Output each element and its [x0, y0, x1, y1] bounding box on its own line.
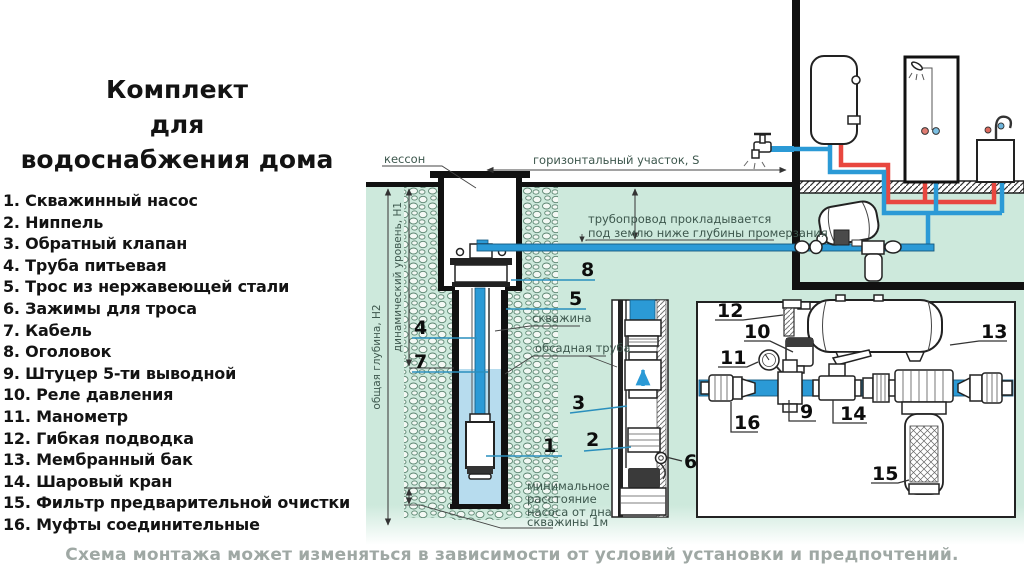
callout-15: 15: [872, 463, 898, 485]
nipple-detail: [628, 428, 660, 452]
label-casing-pipe: обсадная труба: [535, 341, 631, 355]
tap-splash-icon: [744, 161, 765, 169]
basement-bottom-wall: [792, 282, 1024, 290]
diagram-svg: общая глубина, Н2 динамический уровень, …: [0, 0, 1024, 576]
gravel-band: [522, 184, 558, 290]
pump-foot: [469, 474, 491, 479]
pump-head: [470, 414, 490, 422]
caisson-lid: [430, 171, 530, 178]
callout-2: 2: [586, 429, 599, 451]
callout-12: 12: [717, 300, 743, 322]
small-filter-bowl: [865, 254, 882, 281]
small-relay: [834, 230, 849, 245]
label-min-distance-2: расстояние: [527, 492, 597, 506]
outdoor-tap: [744, 134, 794, 169]
label-pipeline-note-2: под землю ниже глубины промерзания: [588, 226, 828, 240]
label-dynamic-level: динамический уровень, Н1: [392, 202, 404, 352]
casing-wall: [501, 290, 508, 506]
callout-5: 5: [569, 288, 582, 310]
pump-detail-inset: [612, 300, 668, 517]
callout-9: 9: [800, 401, 813, 423]
label-min-distance-1: минимальное: [527, 479, 610, 493]
check-valve-detail: [625, 352, 661, 398]
callout-6: 6: [684, 451, 697, 473]
infographic: Комплект для водоснабжения дома 1. Скваж…: [0, 0, 1024, 576]
label-pipeline-note-1: трубопровод прокладывается: [588, 212, 771, 226]
callout-14: 14: [840, 403, 866, 425]
submersible-pump: [466, 422, 494, 468]
gravel-band: [404, 290, 452, 518]
ground-surface-line: [366, 182, 793, 187]
label-caisson: кессон: [384, 152, 425, 166]
membrane-tank: [808, 295, 942, 361]
callout-3: 3: [572, 392, 585, 414]
label-borehole: скважина: [532, 311, 592, 325]
casing-wall: [452, 290, 459, 506]
callout-1: 1: [543, 435, 556, 457]
sink: [977, 117, 1014, 182]
callout-7: 7: [414, 351, 427, 373]
callout-16: 16: [734, 412, 760, 434]
callout-8: 8: [581, 259, 594, 281]
callout-10: 10: [744, 321, 770, 343]
label-horizontal-run: горизонтальный участок, S: [533, 153, 699, 167]
pump-intake: [467, 466, 493, 474]
well: [450, 288, 510, 509]
shower-cabin: [905, 57, 958, 182]
small-filter-head: [862, 241, 884, 254]
label-total-depth: общая глубина, Н2: [371, 304, 383, 409]
drop-pipe: [475, 288, 485, 414]
footer-caption: Схема монтажа может изменяться в зависим…: [0, 545, 1024, 565]
callout-4: 4: [414, 317, 427, 339]
callout-13: 13: [981, 321, 1007, 343]
pump-top-detail: [628, 468, 660, 488]
well-bottom: [450, 504, 510, 509]
water-heater: [811, 56, 857, 144]
label-min-distance-4: скважины 1м: [527, 515, 608, 529]
callout-11: 11: [720, 347, 746, 369]
